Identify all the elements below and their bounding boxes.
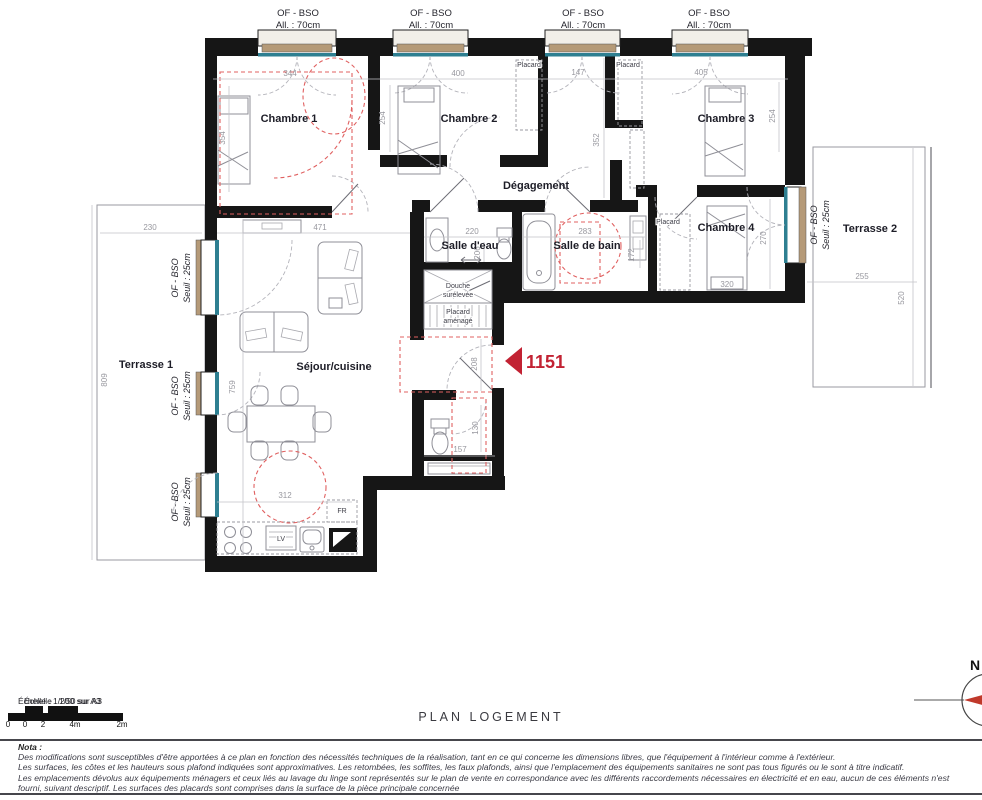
entry-number: 1151: [526, 352, 565, 372]
room-label-salle-eau: Salle d'eau: [441, 240, 498, 252]
shower-label-line2: surélevée: [443, 292, 473, 299]
window-left-2: [196, 372, 219, 415]
nota-block: Nota : Des modifications sont susceptibl…: [18, 742, 949, 793]
divider-line: [0, 739, 982, 741]
north-arrow: N: [912, 648, 982, 748]
nota-line: Les emplacements dévolus aux équipements…: [18, 773, 949, 783]
window-label: OF - BSO: [562, 8, 604, 19]
room-label-sejour: Séjour/cuisine: [296, 361, 371, 373]
dim-label: 230: [143, 223, 157, 232]
north-letter: N: [970, 657, 980, 673]
window-label: Seuil : 25cm: [182, 371, 192, 421]
scale-caption-front: Échelle : 1/50 sur A3: [24, 696, 102, 706]
window-left-3: [196, 473, 219, 517]
dim-label: 354: [218, 131, 227, 145]
room-label-degagement: Dégagement: [503, 180, 569, 192]
window-top-1: [258, 30, 336, 57]
window-top-3: [545, 30, 620, 57]
bed-chambre-4: [707, 206, 747, 290]
window-top-2: [393, 30, 468, 57]
dim-label: 400: [451, 69, 465, 78]
dim-label: 255: [855, 272, 869, 281]
dim-label: 809: [100, 373, 109, 387]
dim-label: 208: [470, 357, 479, 371]
window-label: All. : 70cm: [276, 20, 320, 31]
window-right-1: [784, 187, 806, 263]
fitted-closet-label-line2: aménagé: [443, 318, 472, 325]
window-label: OF - BSO: [170, 482, 180, 521]
closet-label: Placard: [517, 62, 541, 69]
nota-line: Les surfaces, les côtes et les hauteurs …: [18, 762, 949, 772]
dim-label: 172: [627, 248, 636, 262]
divider-line: [0, 793, 982, 795]
dim-label: 320: [720, 280, 734, 289]
window-label: OF - BSO: [170, 376, 180, 415]
dim-label: 220: [465, 227, 479, 236]
window-label: OF - BSO: [170, 258, 180, 297]
closet-label: Placard: [656, 219, 680, 226]
nota-line: fourni, suivant descriptif. Les surfaces…: [18, 783, 949, 793]
page-title: PLAN LOGEMENT: [0, 710, 982, 724]
window-label: Seuil : 25cm: [182, 477, 192, 527]
floor-plan-drawing: 1151 344 400 147 405 230 471 220 283 255: [0, 0, 982, 660]
room-label-chambre-1: Chambre 1: [261, 113, 318, 125]
dim-label: 270: [759, 231, 768, 245]
floor-plan-page: 1151 344 400 147 405 230 471 220 283 255: [0, 0, 982, 800]
fridge-label: FR: [337, 508, 346, 515]
window-label: All. : 70cm: [561, 20, 605, 31]
dim-label: 405: [694, 68, 708, 77]
room-label-chambre-2: Chambre 2: [441, 113, 498, 125]
dim-label: 471: [313, 223, 327, 232]
entry-arrow-icon: [505, 347, 522, 375]
nota-title: Nota :: [18, 742, 949, 752]
room-label-chambre-4: Chambre 4: [698, 222, 756, 234]
dim-label: 254: [378, 111, 387, 125]
window-left-1: [196, 240, 219, 315]
dim-label: 157: [453, 445, 467, 454]
dim-label: 130: [471, 421, 480, 435]
shower-label-line1: Douche: [446, 283, 470, 290]
nota-line: Des modifications sont susceptibles d'êt…: [18, 752, 949, 762]
window-label: OF - BSO: [809, 205, 819, 244]
sofa-set: [240, 220, 362, 352]
bed-chambre-3: [705, 86, 745, 176]
window-label: OF - BSO: [277, 8, 319, 19]
window-label: Seuil : 25cm: [182, 253, 192, 303]
window-label: OF - BSO: [688, 8, 730, 19]
window-label: All. : 70cm: [409, 20, 453, 31]
window-label: All. : 70cm: [687, 20, 731, 31]
door-swings: [173, 56, 785, 517]
dim-label: 147: [571, 68, 585, 77]
dim-label: 254: [768, 109, 777, 123]
dining-table: [228, 386, 331, 460]
dim-label: 352: [592, 133, 601, 147]
dim-label: 520: [897, 291, 906, 305]
closet-hatch: [424, 303, 492, 329]
window-label: Seuil : 25cm: [821, 200, 831, 250]
dim-label: 344: [283, 69, 297, 78]
room-label-terrasse-2: Terrasse 2: [843, 223, 897, 235]
dim-label: 312: [278, 491, 292, 500]
dim-label: 283: [578, 227, 592, 236]
closet-label: Placard: [616, 62, 640, 69]
room-label-chambre-3: Chambre 3: [698, 113, 755, 125]
room-label-salle-bain: Salle de bain: [553, 240, 621, 252]
dishwasher-label: LV: [277, 536, 285, 543]
dim-label: 759: [228, 380, 237, 394]
room-label-terrasse-1: Terrasse 1: [119, 359, 173, 371]
window-top-4: [672, 30, 748, 57]
window-label: OF - BSO: [410, 8, 452, 19]
fitted-closet-label-line1: Placard: [446, 309, 470, 316]
dashed-closets: [516, 60, 690, 290]
